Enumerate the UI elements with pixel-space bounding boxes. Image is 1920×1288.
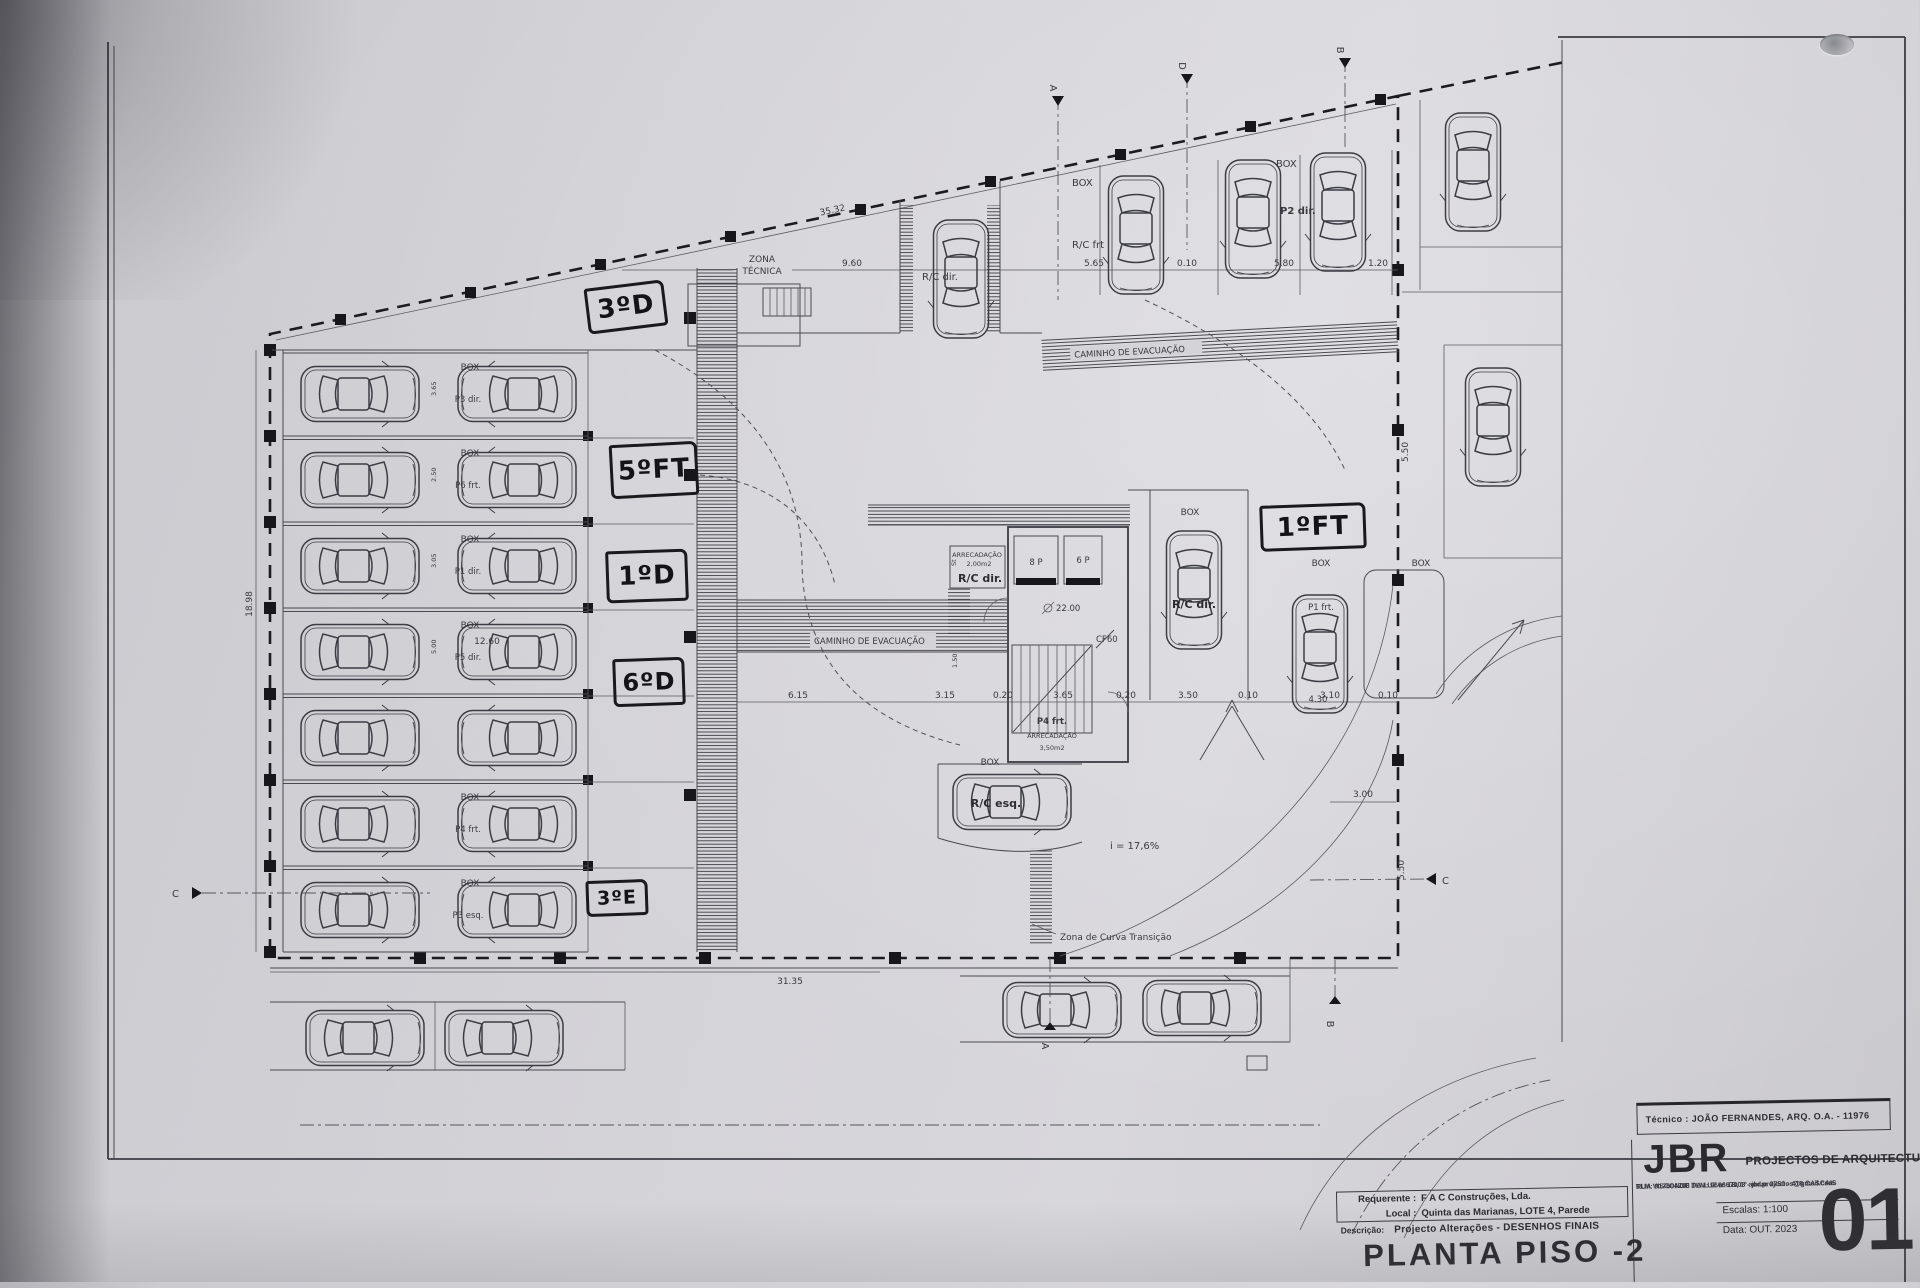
section-c-left: C — [172, 889, 179, 900]
dim-3-00: 3.00 — [1353, 790, 1373, 800]
car-icon — [445, 1005, 563, 1071]
car-icon — [1161, 531, 1227, 649]
firm-logo: JBR — [1643, 1136, 1730, 1183]
dim-3-50: 3.50 — [1178, 691, 1198, 701]
section-b-top: B — [1334, 47, 1345, 54]
unit-rc-dir-car: R/C dir. — [1172, 598, 1216, 611]
sheet-number: 01 — [1818, 1175, 1914, 1265]
client-value: F A C Construções, Lda. — [1421, 1191, 1531, 1204]
structural-columns — [264, 94, 1404, 964]
title-block: Técnico : JOÃO FERNANDES, ARQ. O.A. - 11… — [1334, 1094, 1920, 1287]
unit-rc-dir-room: R/C dir. — [958, 572, 1002, 585]
slope-label: i = 17,6% — [1110, 841, 1159, 852]
floor-plan-canvas: CAMINHO DE EVACUAÇÃO CAMINHO DE EVACUAÇÃ… — [0, 0, 1920, 1282]
row-dim: 2.50 — [430, 468, 438, 482]
right-stalls: BOX R/C dir. BOX P1 frt. 4.30 BOX 5.50 5… — [1128, 345, 1562, 880]
car-icon — [1143, 975, 1261, 1041]
box-label-top-2: BOX — [1276, 159, 1297, 170]
car-icon — [301, 533, 419, 599]
box-label: BOX — [461, 535, 480, 545]
punch-hole — [1820, 34, 1854, 55]
box-label: BOX — [461, 621, 480, 631]
dim-1-50: 1.50 — [951, 654, 959, 668]
hand-annotation-3e: 3ºE — [585, 879, 648, 917]
box-label-top-1: BOX — [1072, 178, 1093, 189]
dim-5-50a: 5.50 — [1401, 442, 1411, 462]
hand-annotation-5ft: 5ºFT — [609, 441, 700, 500]
dim-4-30: 4.30 — [1309, 695, 1328, 705]
car-icon — [1003, 977, 1121, 1043]
dim-3-15: 3.15 — [935, 691, 955, 701]
dim-3-65: 3.65 — [1053, 691, 1073, 701]
stall-label: P3 esq. — [453, 911, 484, 921]
dim-6-15: 6.15 — [788, 691, 808, 701]
parking-row: BOX P3 dir. 3.65 — [301, 361, 576, 427]
zona-tecnica-label-2: TÉCNICA — [741, 265, 782, 277]
stairs-icon-small — [763, 288, 811, 316]
box-label: BOX — [461, 879, 480, 889]
client-label: Requerente : — [1337, 1193, 1421, 1206]
elevator-8p-label: 8 P — [1029, 558, 1042, 568]
drawing-title: PLANTA PISO -2 — [1363, 1232, 1674, 1274]
storage-big-label: ARRECADAÇÃO — [1027, 731, 1077, 740]
stall-label: P3 dir. — [455, 395, 481, 405]
firm-subtitle: PROJECTOS DE ARQUITECTURA — [1745, 1152, 1920, 1168]
box-label: BOX — [461, 793, 480, 803]
section-a-top: A — [1047, 85, 1058, 92]
dim-0-20b: 0.20 — [1116, 691, 1136, 701]
car-icon — [301, 791, 419, 857]
car-icon — [458, 705, 576, 771]
storage-small-st: St — [950, 559, 958, 566]
top-stalls: BOX R/C frt BOX P2 dir. — [1072, 100, 1562, 295]
dim-9-60: 9.60 — [842, 259, 862, 269]
car-icon — [306, 1005, 424, 1071]
stall-label: P5 dir. — [455, 653, 481, 663]
car-icon — [1440, 113, 1506, 231]
row-dim: 3.65 — [430, 382, 438, 396]
row-dim: 5.00 — [430, 640, 438, 654]
car-icon — [1103, 176, 1169, 294]
parking-row: BOX P6 frt. 2.50 — [301, 447, 576, 513]
hand-annotation-3d: 3ºD — [583, 279, 668, 334]
sheet-border — [108, 37, 1920, 1282]
unit-rc-esq: R/C esq. — [971, 797, 1021, 810]
stall-label: P1 dir. — [455, 567, 481, 577]
corridor-mid-label: CAMINHO DE EVACUAÇÃO — [814, 636, 925, 647]
stall-label: P4 frt. — [455, 825, 481, 835]
storage-big-area: 3,50m2 — [1040, 744, 1065, 752]
parking-row: BOX P5 dir. 5.00 12.60 — [301, 619, 576, 685]
row-dim: 3.05 — [430, 554, 438, 568]
level-value: 22.00 — [1056, 604, 1080, 614]
car-icon — [1460, 368, 1526, 486]
turn-arrow — [1200, 700, 1264, 760]
box-label: BOX — [461, 449, 480, 459]
storage-small-area: 2,00m2 — [967, 560, 992, 568]
stall-p1-frt: P1 frt. — [1308, 603, 1334, 613]
box-label-h: BOX — [1312, 559, 1331, 569]
direction-arrow — [1458, 620, 1524, 700]
parking-row: BOX P4 frt. — [301, 791, 576, 857]
parking-row — [301, 705, 576, 771]
hand-annotation-1ft: 1ºFT — [1259, 502, 1367, 552]
site-value: Quinta das Marianas, LOTE 4, Parede — [1421, 1205, 1590, 1219]
hand-annotation-1d: 1ºD — [605, 549, 689, 604]
dim-0-20a: 0.20 — [993, 691, 1013, 701]
dim-0-10a: 0.10 — [1177, 259, 1197, 269]
box-label-g: BOX — [1181, 508, 1200, 518]
dim-0-10c: 0.10 — [1378, 691, 1398, 701]
storage-small-label: ARRECADAÇÃO — [952, 550, 1002, 559]
ramp-strip — [697, 268, 737, 952]
dim-5-65: 5.65 — [1084, 259, 1104, 269]
stall-label: P6 frt. — [455, 481, 481, 491]
car-icon — [301, 361, 419, 427]
car-icon — [301, 705, 419, 771]
dim-31-35: 31.35 — [777, 977, 803, 987]
section-a-bottom: A — [1039, 1043, 1050, 1050]
stall-p4-frt: P4 frt. — [1037, 717, 1067, 727]
site-label: Local : — [1337, 1208, 1421, 1221]
parking-row: BOX P3 esq. — [301, 877, 576, 943]
technician-field: Técnico : JOÃO FERNANDES, ARQ. O.A. - 11… — [1636, 1098, 1891, 1135]
curve-zone-label: Zona de Curva Transição — [1060, 933, 1172, 943]
car-icon — [301, 877, 419, 943]
box-label-stall: BOX — [1412, 559, 1431, 569]
parking-row: BOX P1 dir. 3.05 — [301, 533, 576, 599]
stall-rc-dir-top: R/C dir. — [922, 272, 958, 283]
corridor-top: CAMINHO DE EVACUAÇÃO — [1041, 322, 1398, 371]
building-core: ARRECADAÇÃO 2,00m2 St R/C dir. 8 P 6 P 2… — [737, 505, 1398, 945]
section-b-bottom: B — [1324, 1021, 1335, 1028]
stall-p2-dir: P2 dir. — [1280, 206, 1316, 217]
box-label: BOX — [461, 363, 480, 373]
door-cf60-label: CF60 — [1096, 635, 1118, 645]
client-box: Requerente : F A C Construções, Lda. Loc… — [1336, 1186, 1629, 1223]
dim-12-60: 12.60 — [474, 637, 500, 647]
description-label: Descrição: — [1341, 1225, 1385, 1236]
zona-tecnica-label-1: ZONA — [749, 255, 776, 265]
dim-5-50b: 5.50 — [1397, 860, 1407, 880]
car-icon — [301, 447, 419, 513]
section-d-top: D — [1176, 62, 1187, 70]
dim-18-98: 18.98 — [245, 591, 255, 617]
hand-annotation-6d: 6ºD — [612, 657, 686, 707]
box-label-i: BOX — [981, 758, 1000, 768]
stall-rc-frt: R/C frt — [1072, 240, 1104, 251]
left-parking-rows: BOX P3 dir. 3.65 BOX P6 frt. 2.50 BOX P1… — [245, 350, 697, 952]
car-icon — [301, 619, 419, 685]
elevator-6p-label: 6 P — [1076, 556, 1089, 566]
dim-1-20: 1.20 — [1368, 259, 1388, 269]
section-c-right: C — [1442, 876, 1449, 887]
